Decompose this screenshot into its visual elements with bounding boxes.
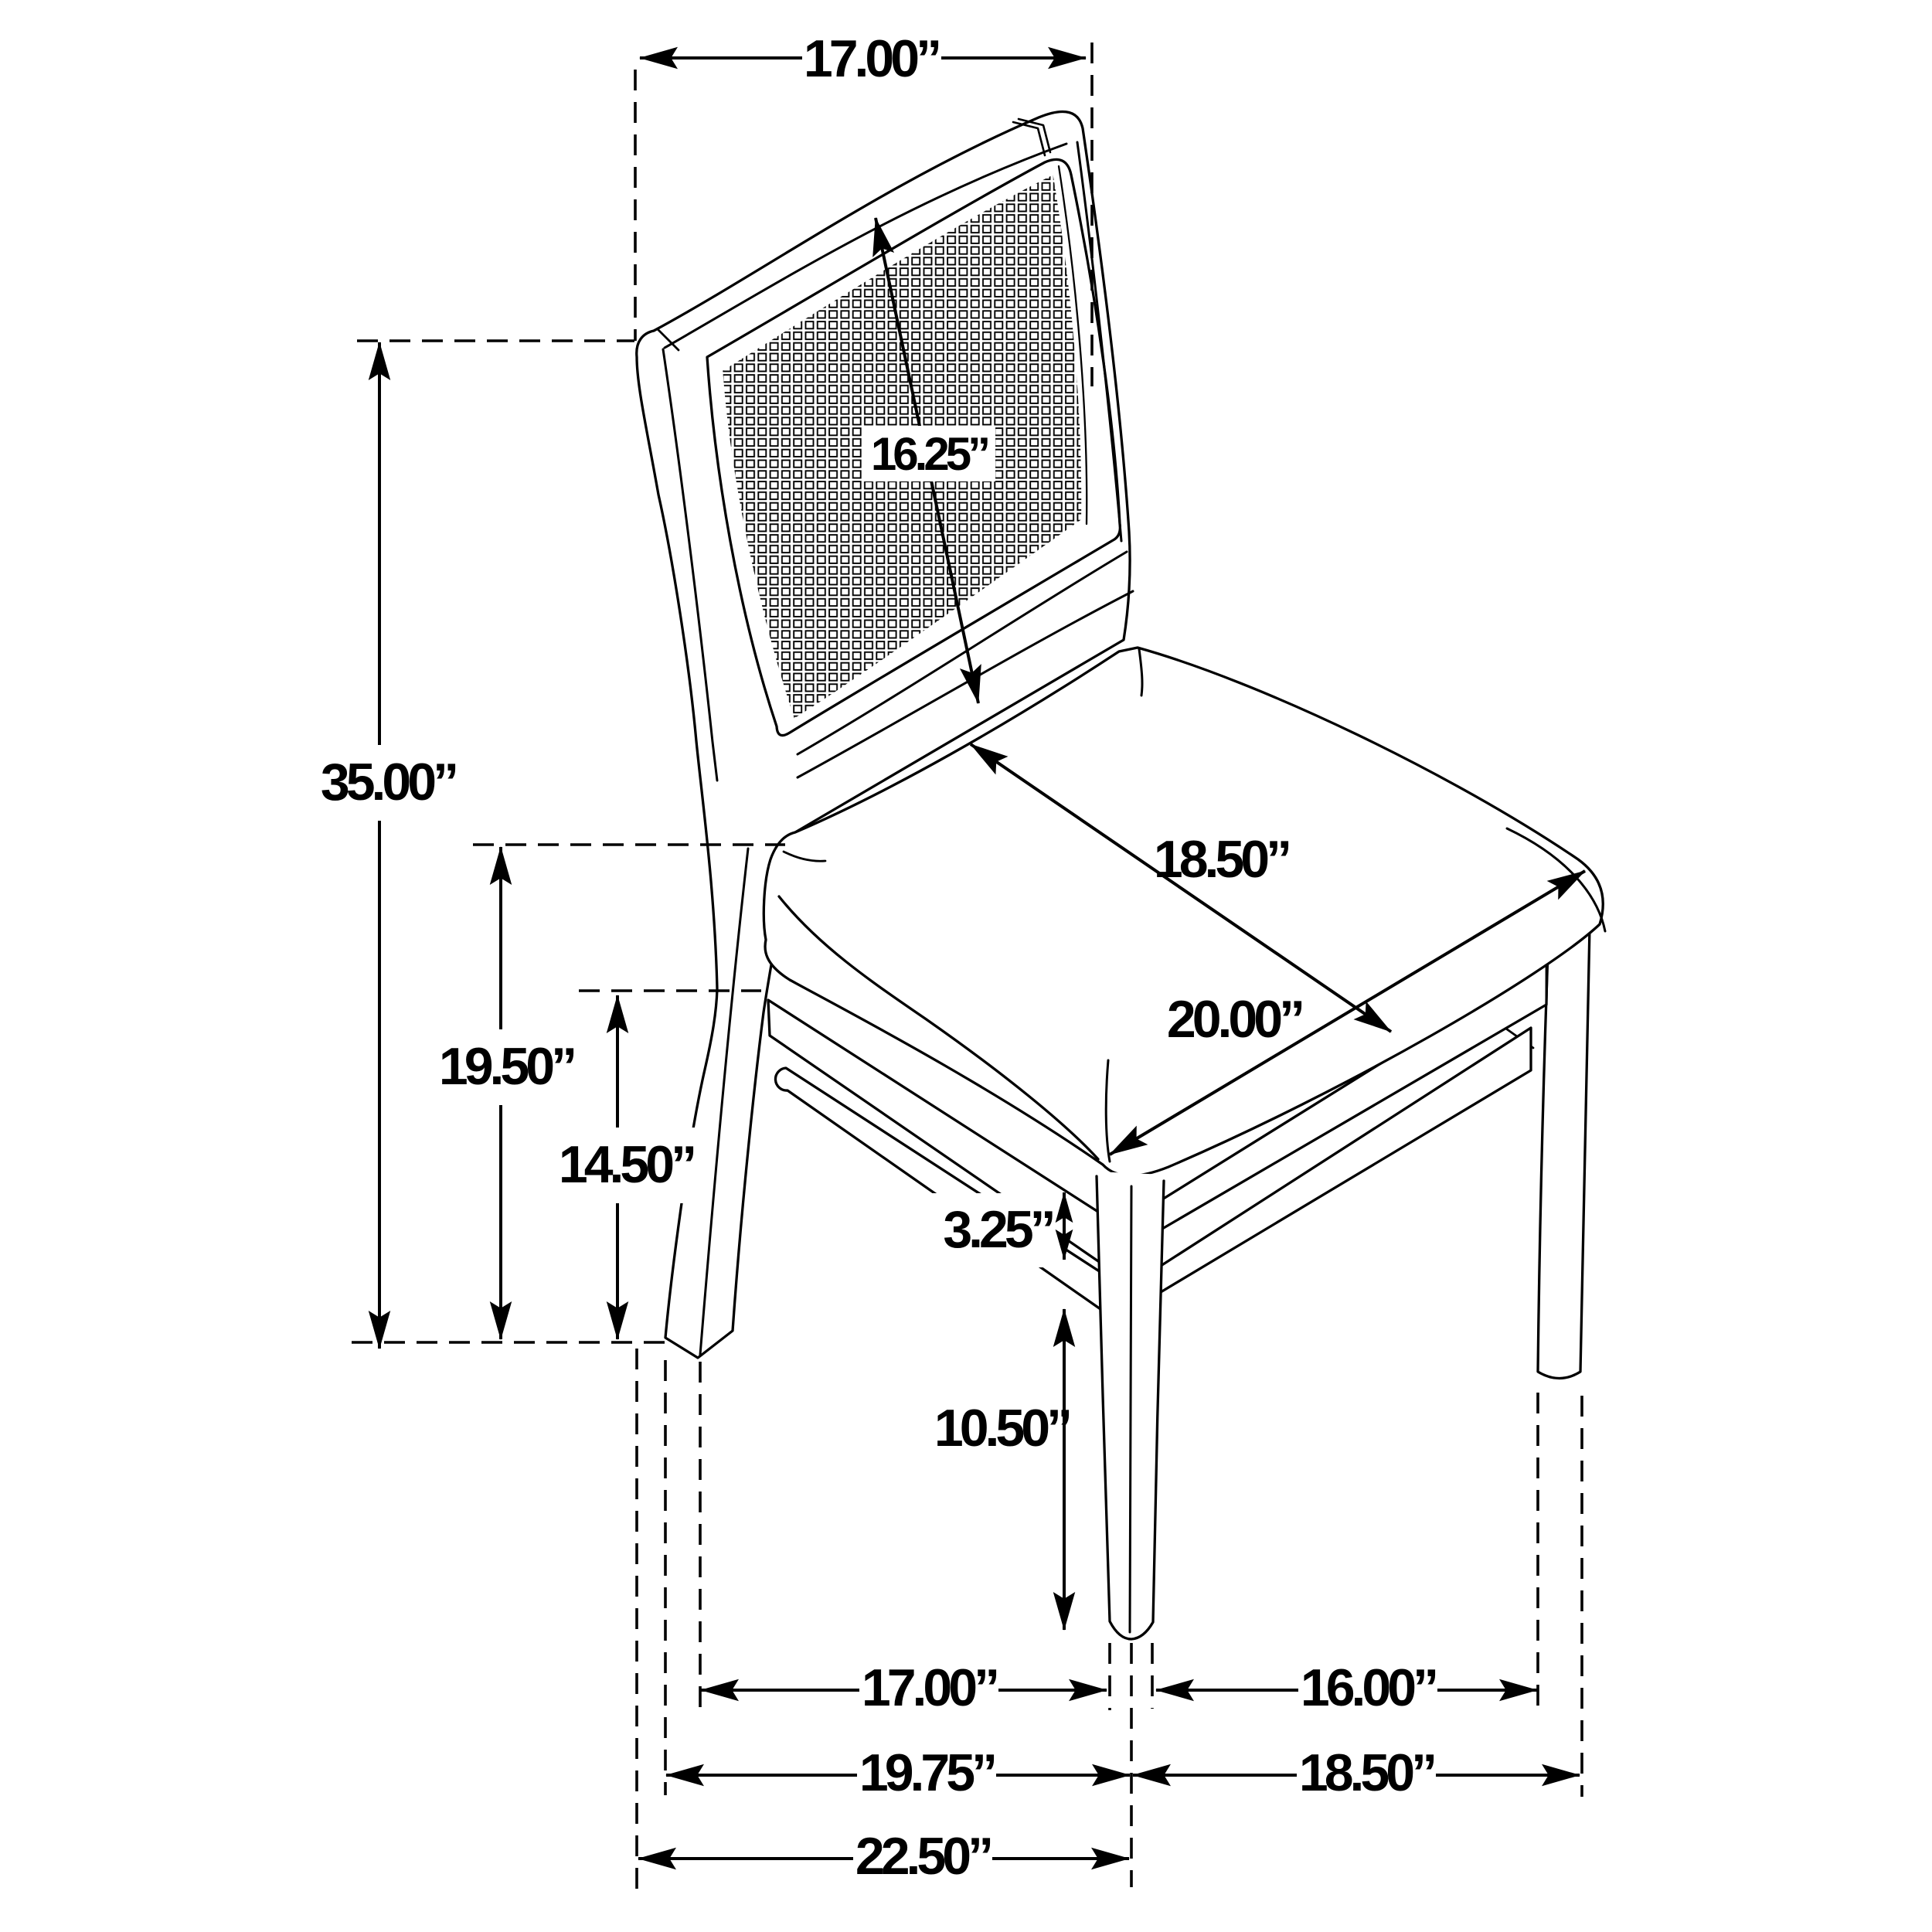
svg-text:22.50”: 22.50” (855, 1827, 990, 1886)
svg-text:18.50”: 18.50” (1299, 1743, 1434, 1802)
svg-text:35.00”: 35.00” (321, 753, 455, 811)
svg-text:14.50”: 14.50” (559, 1135, 693, 1194)
svg-text:16.00”: 16.00” (1301, 1658, 1435, 1717)
svg-text:3.25”: 3.25” (943, 1200, 1052, 1259)
svg-text:19.50”: 19.50” (439, 1037, 573, 1096)
svg-text:16.25”: 16.25” (871, 428, 988, 480)
svg-text:17.00”: 17.00” (862, 1658, 996, 1717)
svg-text:20.00”: 20.00” (1167, 990, 1301, 1049)
svg-text:17.00”: 17.00” (804, 29, 938, 88)
svg-text:10.50”: 10.50” (934, 1399, 1069, 1458)
svg-text:19.75”: 19.75” (859, 1743, 994, 1802)
svg-text:18.50”: 18.50” (1154, 830, 1288, 889)
